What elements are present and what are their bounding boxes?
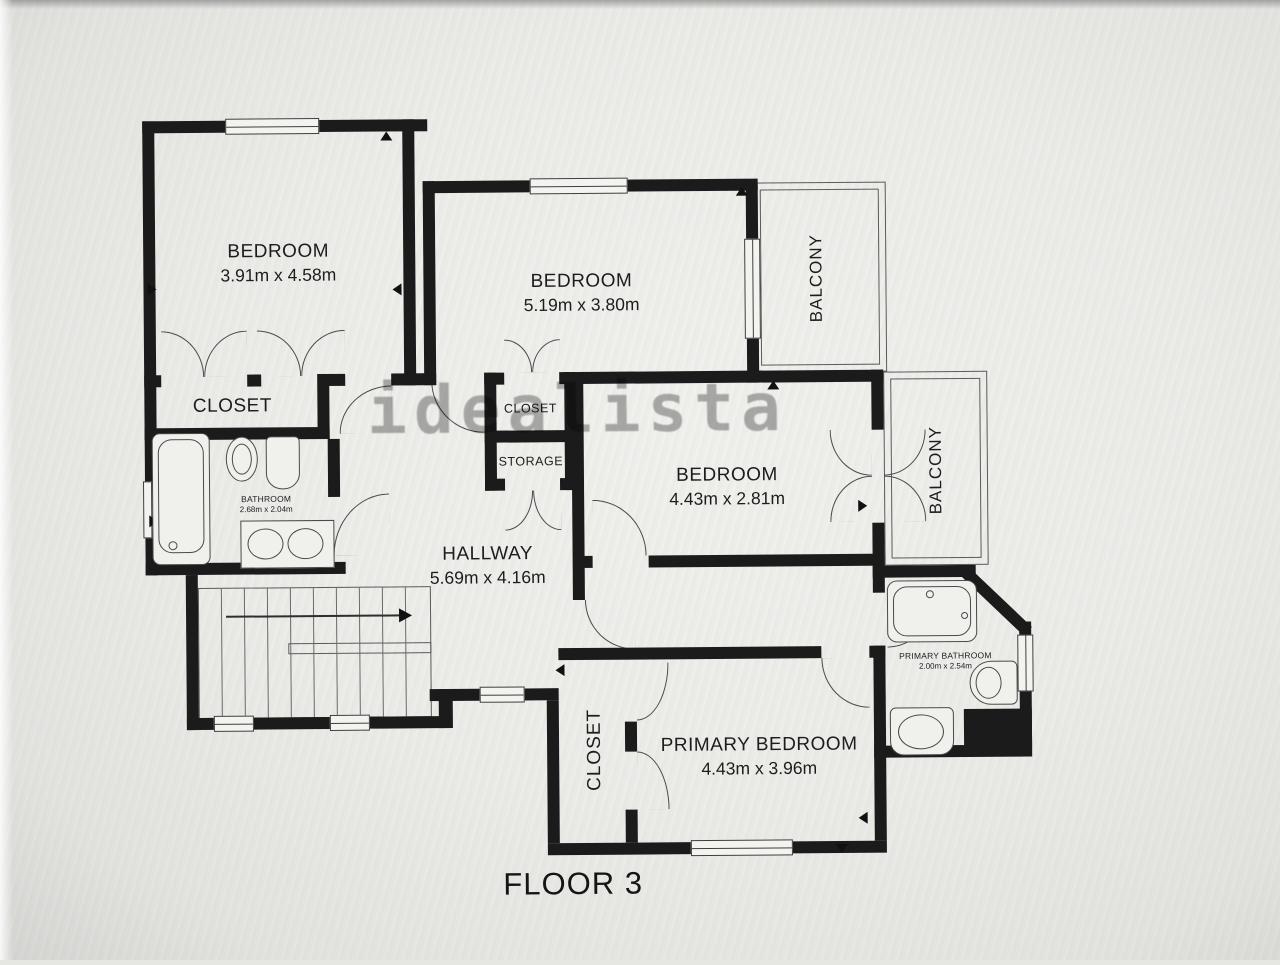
room-label-hallway: HALLWAY 5.69m x 4.16m [430,542,546,590]
door-arc [821,658,869,708]
room-dims: 5.69m x 4.16m [430,566,546,589]
room-name: HALLWAY [430,542,546,567]
door-arc [257,330,301,376]
wall [872,523,885,593]
door-arc [636,662,668,720]
room-label-primary-bathroom: PRIMARY BATHROOM 2.00m x 2.54m [899,650,992,672]
room-name: BEDROOM [669,463,785,488]
wall [430,689,480,701]
window [330,715,370,731]
wall [317,374,330,439]
dimension-arrow [380,131,392,140]
room-dims: 4.43m x 3.96m [661,757,858,781]
wall [548,842,691,855]
floor-title: FLOOR 3 [503,866,643,903]
bathtub-inner [158,439,205,553]
room-label-bathroom: BATHROOM 2.68m x 2.04m [240,494,293,516]
room-name: PRIMARY BATHROOM [899,650,992,662]
stairs-direction-arrow [399,608,412,622]
plan-geometry [0,0,1276,5]
door-arc [333,493,389,555]
wall [871,370,883,430]
primary-bathtub-drain [961,612,968,619]
door-arc [830,430,872,476]
bidet-inner [232,444,252,475]
door-arc [301,330,345,376]
dimension-arrow [858,500,867,512]
window [530,178,628,195]
window [744,239,761,339]
wall [186,575,199,730]
room-name: PRIMARY BEDROOM [661,732,858,758]
wall [247,375,261,387]
room-label-bedroom-top-middle: BEDROOM 5.19m x 3.80m [523,269,639,317]
door-arc [533,490,561,530]
wall [558,646,821,660]
room-dims: 3.91m x 4.58m [220,264,336,287]
dimension-arrow [859,812,868,824]
room-name: BEDROOM [220,240,336,265]
window [480,686,525,702]
window [225,118,319,135]
wall [525,688,559,700]
window [214,716,254,732]
room-dims: 4.43m x 2.81m [669,487,785,510]
dimension-arrow [392,283,401,295]
door-arc [161,331,204,377]
window [1017,634,1033,691]
primary-toilet-inner [898,714,944,749]
bathtub-drain [168,541,177,550]
wall [873,646,887,841]
room-label-closet-primary: CLOSET [583,709,608,791]
sink-right [287,528,323,559]
door-arc [504,339,532,372]
room-name: CLOSET [193,394,272,419]
door-arc [592,499,646,555]
room-dims: 2.68m x 2.04m [240,505,293,516]
wall [370,716,451,729]
door-arc [204,331,247,377]
room-name: BALCONY [925,426,947,514]
wall [625,722,637,752]
wall [254,717,330,730]
room-dims: 2.00m x 2.54m [899,661,992,672]
wall [1020,691,1032,744]
wall [649,554,885,568]
dimension-arrow [836,844,848,853]
wall [626,810,638,843]
photo-background: BEDROOM 3.91m x 4.58m BEDROOM 5.19m x 3.… [0,0,1280,960]
watermark-logo: idealista [367,369,788,449]
room-label-balcony-right: BALCONY [925,426,947,514]
door-arc [532,339,560,372]
room-name: STORAGE [499,453,564,470]
dimension-arrow [147,283,156,295]
room-name: BALCONY [805,234,827,322]
room-label-storage: STORAGE [499,453,564,470]
primary-toilet-side-inner [975,667,1001,699]
primary-bathtub-faucet [926,590,934,598]
sink-left [247,528,283,559]
wall [547,700,560,843]
room-name: BATHROOM [240,494,293,505]
dimension-arrow [555,664,564,676]
door-arc [505,490,533,530]
room-name: BEDROOM [523,269,639,294]
window [691,839,793,856]
wall [402,119,416,385]
room-label-balcony-top: BALCONY [805,234,827,322]
dimension-arrow [736,187,748,196]
room-name: CLOSET [583,709,608,791]
wall [328,439,340,497]
toilet [266,436,300,489]
floor-plan: BEDROOM 3.91m x 4.58m BEDROOM 5.19m x 3.… [0,0,1280,965]
room-label-primary-bedroom: PRIMARY BEDROOM 4.43m x 3.96m [661,732,858,780]
wall [423,181,437,385]
room-label-bedroom-top-left: BEDROOM 3.91m x 4.58m [220,240,336,288]
room-label-bedroom-middle-right: BEDROOM 4.43m x 2.81m [669,463,785,511]
room-dims: 5.19m x 3.80m [524,293,640,316]
door-arc [585,600,635,650]
room-label-closet-bedroom1: CLOSET [193,394,272,419]
